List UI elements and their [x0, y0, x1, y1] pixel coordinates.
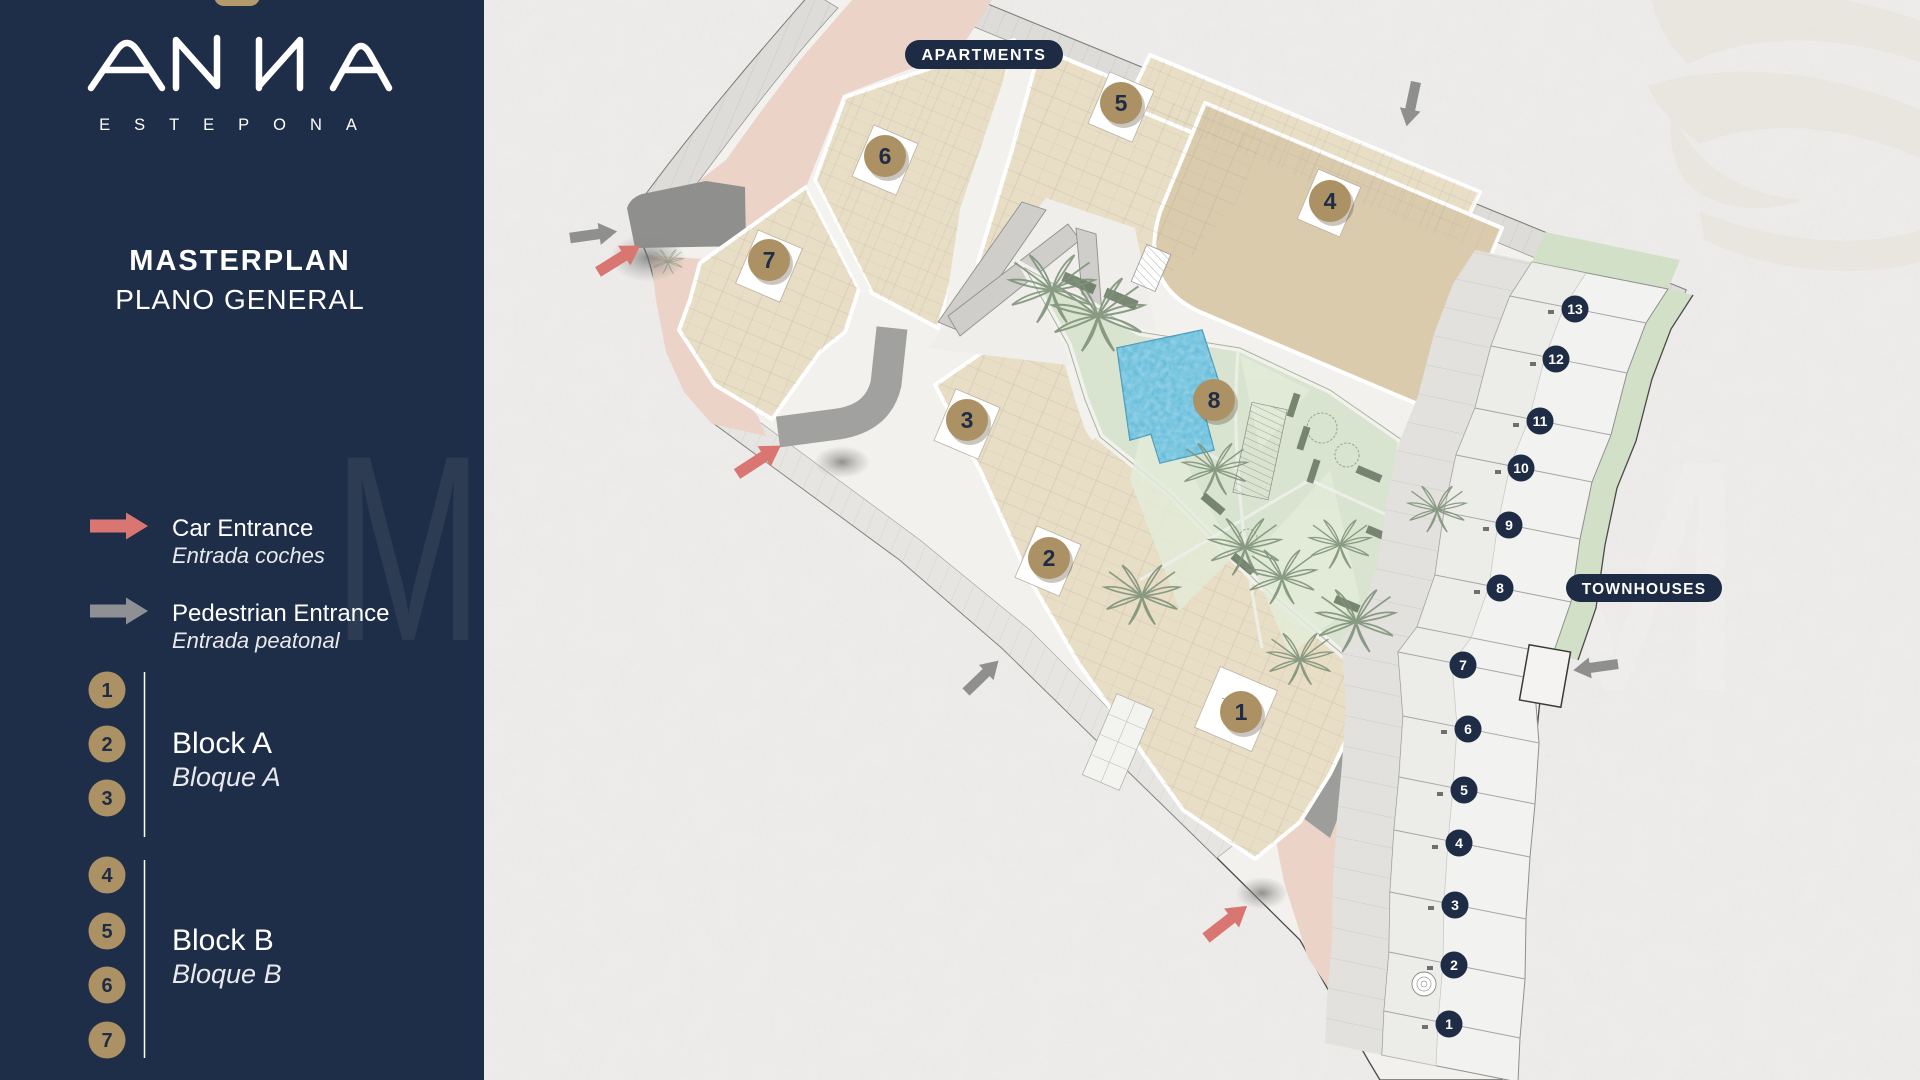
- svg-text:7: 7: [763, 247, 776, 273]
- svg-text:3: 3: [961, 407, 974, 433]
- svg-text:1: 1: [1445, 1016, 1453, 1032]
- svg-text:11: 11: [1533, 413, 1548, 429]
- svg-text:3: 3: [1451, 897, 1459, 913]
- svg-text:4: 4: [101, 865, 113, 887]
- svg-text:4: 4: [1324, 188, 1337, 214]
- svg-text:6: 6: [1464, 721, 1472, 737]
- svg-text:PLANO GENERAL: PLANO GENERAL: [115, 284, 365, 315]
- svg-text:6: 6: [879, 143, 892, 169]
- svg-text:7: 7: [101, 1030, 112, 1052]
- svg-text:4: 4: [1455, 835, 1463, 851]
- svg-text:TOWNHOUSES: TOWNHOUSES: [1582, 581, 1707, 598]
- svg-text:Bloque B: Bloque B: [172, 959, 282, 989]
- svg-text:M: M: [333, 401, 483, 697]
- svg-text:13: 13: [1567, 301, 1583, 317]
- svg-text:Bloque A: Bloque A: [172, 762, 281, 792]
- svg-text:7: 7: [1459, 657, 1467, 673]
- svg-text:Entrada peatonal: Entrada peatonal: [172, 628, 341, 653]
- svg-text:Car Entrance: Car Entrance: [172, 515, 313, 542]
- svg-text:9: 9: [1505, 517, 1513, 533]
- svg-text:1: 1: [101, 680, 112, 702]
- svg-text:5: 5: [1460, 782, 1468, 798]
- svg-text:8: 8: [1496, 580, 1504, 596]
- svg-text:6: 6: [101, 975, 112, 997]
- svg-text:2: 2: [1450, 957, 1458, 973]
- svg-text:Block B: Block B: [172, 924, 274, 957]
- svg-text:2: 2: [101, 734, 112, 756]
- svg-text:5: 5: [1115, 90, 1128, 116]
- svg-text:5: 5: [101, 921, 112, 943]
- svg-text:Entrada coches: Entrada coches: [172, 543, 325, 568]
- svg-text:MASTERPLAN: MASTERPLAN: [129, 245, 350, 277]
- svg-text:2: 2: [1043, 545, 1056, 571]
- svg-text:10: 10: [1513, 460, 1529, 476]
- svg-text:APARTMENTS: APARTMENTS: [922, 47, 1047, 64]
- svg-text:Pedestrian Entrance: Pedestrian Entrance: [172, 600, 389, 627]
- svg-text:12: 12: [1548, 351, 1564, 367]
- svg-text:3: 3: [101, 788, 112, 810]
- svg-text:8: 8: [1208, 387, 1221, 413]
- svg-text:1: 1: [1235, 699, 1248, 725]
- svg-text:ESTEPONA: ESTEPONA: [99, 116, 381, 134]
- svg-text:Block A: Block A: [172, 727, 272, 760]
